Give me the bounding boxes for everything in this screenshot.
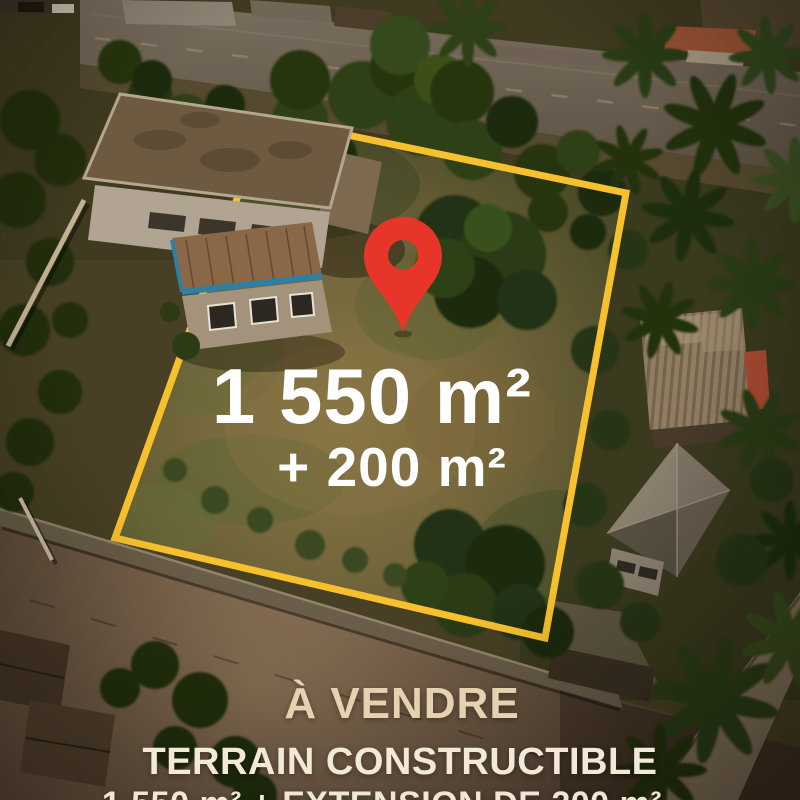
sale-subtitle: TERRAIN CONSTRUCTIBLE — [142, 743, 657, 781]
area-main-label: 1 550 m² — [212, 357, 532, 435]
real-estate-flyer: 1 550 m² + 200 m² À VENDRE TERRAIN CONST… — [0, 0, 800, 800]
area-extension-label: + 200 m² — [277, 440, 507, 495]
sale-title: À VENDRE — [284, 682, 519, 726]
sale-details: 1 550 m² + EXTENSION DE 200 m² — [102, 787, 662, 800]
